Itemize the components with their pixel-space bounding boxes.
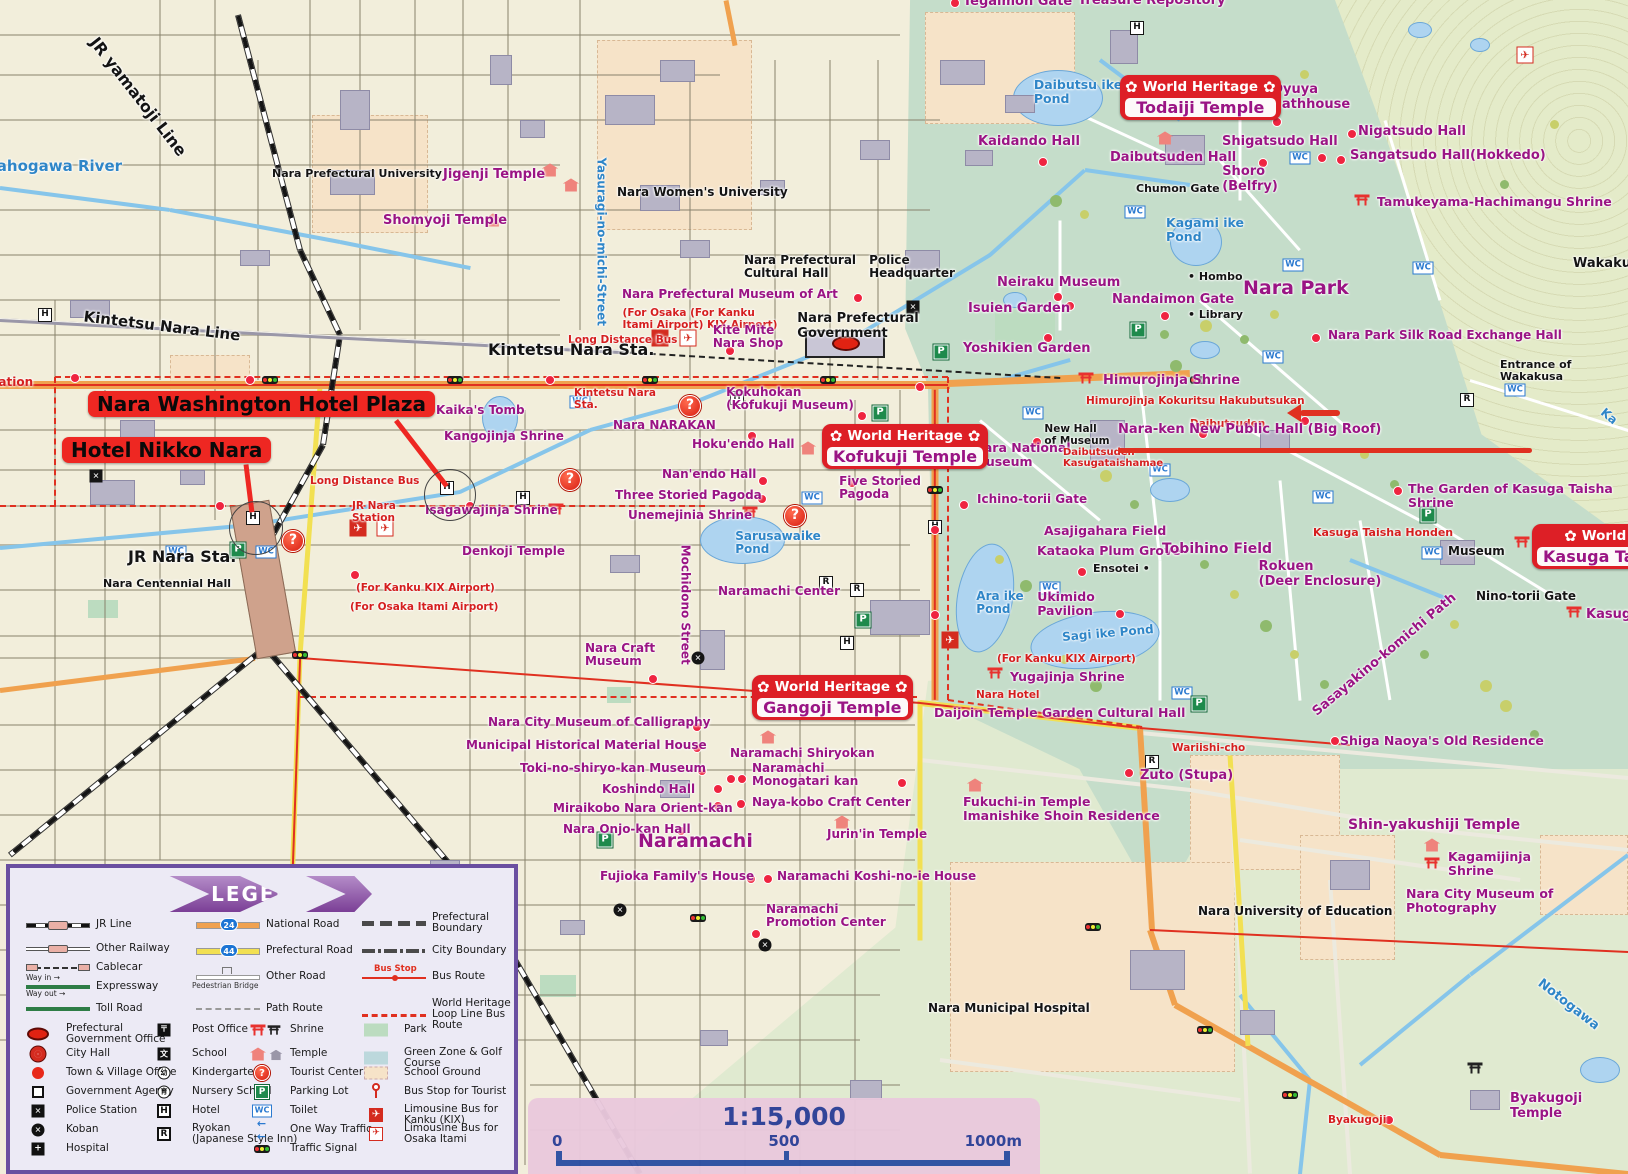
legend-item-label: Bus Stop for Tourist xyxy=(404,1086,506,1097)
poi-dot xyxy=(930,610,940,620)
map-label: Naramachi Shiryokan xyxy=(730,747,875,760)
world-heritage-box: ✿World Heritage✿Kasuga Taisha Shrine xyxy=(1532,524,1628,569)
street xyxy=(579,0,581,330)
map-label: Nara Prefectural University xyxy=(272,168,442,180)
map-label: Wakakusa xyxy=(1573,257,1628,272)
map-label: Sarusawaike Pond xyxy=(735,530,821,557)
tree xyxy=(1170,360,1182,372)
map-label: Daibutsu ike Pond xyxy=(1034,78,1122,106)
nara-tourist-map: WCWCWCWCWCWCWCWCWCWCWCWCWCWCWCWCPPPPPPPP… xyxy=(0,0,1628,1174)
poi-dot xyxy=(763,874,773,884)
poi-dot xyxy=(1317,153,1327,163)
world-heritage-label: World Heritage xyxy=(1143,79,1258,95)
map-label: Kaidando Hall xyxy=(978,135,1080,150)
legend-item-label: Temple xyxy=(290,1048,327,1059)
parking-icon: P xyxy=(1131,323,1146,338)
map-label: Hoku'endo Hall xyxy=(692,438,795,451)
bus-stop-head xyxy=(372,1083,380,1091)
oneway-icon: ← ← xyxy=(251,1117,273,1143)
map-label: Unemejinia Shrine xyxy=(628,509,752,522)
building xyxy=(680,240,710,258)
legend-symbol: 文 xyxy=(150,1047,186,1061)
map-label: Police Headquarter xyxy=(869,254,955,281)
legend-symbol: 育 xyxy=(150,1085,186,1099)
red-arrow-icon xyxy=(1300,410,1340,416)
map-label: Museum xyxy=(1448,545,1505,558)
map-label: Nara Prefectural Museum of Art xyxy=(622,288,838,301)
building xyxy=(850,1080,882,1100)
map-label: Ukimido Pavilion xyxy=(1037,590,1095,618)
sakura-flower-icon: ✿ xyxy=(968,427,981,445)
building xyxy=(605,95,655,125)
traffic-signal-icon xyxy=(690,914,706,922)
legend-item-label: Cablecar xyxy=(96,962,142,973)
sakura-flower-icon: ✿ xyxy=(830,427,843,445)
legend-symbol xyxy=(362,944,426,958)
map-label: Kagamijinja Shrine xyxy=(1448,850,1531,878)
toilet-icon: WC xyxy=(1422,547,1443,560)
world-heritage-site-name: Kasuga Taisha Shrine xyxy=(1537,547,1628,566)
street xyxy=(0,814,915,816)
toilet-icon: WC xyxy=(802,492,823,505)
poi-dot xyxy=(350,570,360,580)
building xyxy=(560,920,585,935)
legend-item-label: Post Office xyxy=(192,1024,248,1035)
map-label: Yugajinja Shrine xyxy=(1010,670,1125,684)
legend-item-label: Limousine Bus for Osaka Itami xyxy=(404,1123,514,1145)
map-label: Shomyoji Temple xyxy=(383,214,507,229)
toilet-icon: WC xyxy=(1023,407,1044,420)
legend-way-in: Way in → xyxy=(26,973,60,982)
poi-dot xyxy=(857,411,867,421)
tree xyxy=(1100,470,1112,482)
poi-dot xyxy=(930,525,940,535)
scale-line xyxy=(556,1160,1010,1166)
map-label: Kasuga xyxy=(1586,608,1628,623)
torii-shrine-icon xyxy=(268,1025,279,1034)
legend-item-label: Police Station xyxy=(66,1105,137,1116)
map-label: The Garden of Kasuga Taisha Shrine xyxy=(1408,482,1628,510)
tree xyxy=(1480,680,1492,692)
red-arrow-head xyxy=(1287,404,1301,422)
poi-dot xyxy=(70,373,80,383)
greenzone-icon xyxy=(364,1052,388,1065)
building xyxy=(340,90,370,130)
traffic-signal-icon xyxy=(1282,1091,1298,1099)
legend-route-badge: 44 xyxy=(220,944,238,957)
sakura-flower-icon: ✿ xyxy=(895,678,908,696)
building xyxy=(610,555,640,573)
poi-dot xyxy=(959,500,969,510)
map-label: Chumon Gate xyxy=(1136,183,1220,195)
map-label: Tegaimon Gate xyxy=(963,0,1072,10)
legend-symbol: 24 xyxy=(196,918,260,932)
map-label: Toki-no-shiryo-kan Museum xyxy=(520,762,706,775)
building xyxy=(1240,1010,1275,1035)
map-label: JR Nara Sta. xyxy=(128,548,236,566)
street xyxy=(309,0,311,380)
poi-dot xyxy=(1393,486,1403,496)
park-patch xyxy=(88,600,118,618)
hotel-icon: H xyxy=(157,1104,171,1118)
map-label: Sahogawa River xyxy=(0,158,122,175)
red-underline xyxy=(1118,448,1532,453)
toilet-icon: WC xyxy=(1505,384,1526,397)
sakura-flower-icon: ✿ xyxy=(1125,78,1138,96)
legend-line-sample xyxy=(48,945,68,953)
legend-item-signal: Traffic Signal xyxy=(248,1142,357,1156)
legend-symbol: 44 xyxy=(196,944,260,958)
building xyxy=(965,150,993,166)
map-label: Isuien Garden xyxy=(968,302,1070,317)
poi-dot xyxy=(1347,129,1357,139)
legend-symbol: ✕ xyxy=(24,1123,60,1137)
legend-item-prefb: Prefectural Boundary xyxy=(362,912,489,934)
building xyxy=(700,630,725,670)
traffic-signal-icon xyxy=(820,376,836,384)
traffic-signal-icon xyxy=(262,376,278,384)
legend-item-label: School Ground xyxy=(404,1067,481,1078)
map-label: Nara Centennial Hall xyxy=(103,578,231,590)
legend-symbol: + xyxy=(24,1142,60,1156)
koban-icon: ✕ xyxy=(692,652,705,665)
legend-symbol: 〒 xyxy=(150,1023,186,1037)
legend-item-label: City Boundary xyxy=(432,945,506,956)
traffic-signal-icon xyxy=(1085,923,1101,931)
legend-symbol: R xyxy=(150,1127,186,1141)
wh-loop-route xyxy=(54,377,56,506)
legend-symbol xyxy=(362,1008,426,1022)
map-label: Denkoji Temple xyxy=(462,545,565,558)
pond xyxy=(1470,38,1490,52)
world-heritage-title: ✿World Heritage✿ xyxy=(757,678,908,696)
legend-item-kinder: 幼Kindergarten xyxy=(150,1066,260,1080)
pond xyxy=(1580,1057,1620,1083)
highlight-circle xyxy=(424,469,476,521)
legend-item-label: One Way Traffic xyxy=(290,1124,372,1135)
scale-tick-0: 0 xyxy=(552,1132,562,1150)
police-station-icon: ✕ xyxy=(90,470,103,483)
legend-line-sample xyxy=(196,1008,260,1010)
poi-dot xyxy=(758,476,768,486)
map-label: Nara City Museum of Calligraphy xyxy=(488,716,710,729)
poi-dot xyxy=(726,774,736,784)
building xyxy=(1110,30,1138,64)
traffic-signal-icon xyxy=(292,651,308,659)
legend-item-label: City Hall xyxy=(66,1048,110,1059)
legend-symbol xyxy=(196,1002,260,1016)
legend-symbol xyxy=(24,1085,60,1099)
tree xyxy=(1320,680,1329,689)
pond xyxy=(1190,341,1220,359)
legend-title-text: LEGEND xyxy=(211,882,313,906)
legend-symbol xyxy=(24,1047,60,1061)
legend-symbol xyxy=(248,1047,284,1061)
legend-item-label: Tourist Center xyxy=(290,1067,363,1078)
map-label: Fukuchi-in Temple Imanishike Shoin Resid… xyxy=(963,795,1160,823)
street xyxy=(414,0,416,380)
parking-icon: P xyxy=(1192,697,1207,712)
world-heritage-title: ✿World Heritage✿ xyxy=(827,427,983,445)
building xyxy=(1005,95,1035,113)
hotel-icon: H xyxy=(840,636,854,650)
legend-line-sample xyxy=(26,1007,90,1011)
map-label: Nara Municipal Hospital xyxy=(928,1002,1090,1015)
legend-symbol: 幼 xyxy=(150,1066,186,1080)
legend-symbol xyxy=(26,1002,90,1016)
wh-loop-route xyxy=(55,376,948,378)
building xyxy=(180,470,205,485)
map-label: • Hombo xyxy=(1188,271,1243,283)
world-heritage-site-name: Todaiji Temple xyxy=(1125,98,1276,117)
parking-icon: P xyxy=(856,613,871,628)
highlight-circle xyxy=(229,501,283,555)
legend-item-cityb: City Boundary xyxy=(362,944,506,958)
map-label: Kokuhokan (Kofukuji Museum) xyxy=(726,386,854,413)
map-label: Kintetsu Nara Sta. xyxy=(574,388,656,412)
map-label: JR Nara Station xyxy=(352,501,396,525)
map-label: Ensotei • xyxy=(1093,563,1150,575)
world-heritage-label: World Heritage xyxy=(847,428,962,444)
legend-symbol xyxy=(248,1023,284,1037)
map-label: Nara Women's University xyxy=(617,186,788,199)
map-label: Nara University of Education xyxy=(1198,905,1392,918)
world-heritage-title: ✿World Heritage✿ xyxy=(1125,78,1276,96)
map-label: Kangojinja Shrine xyxy=(444,430,564,443)
map-label: Miraikobo Nara Orient-kan xyxy=(553,802,733,815)
map-label: Nara City Museum of Photography xyxy=(1406,887,1628,915)
toilet-icon: WC xyxy=(1413,262,1434,275)
map-label: Naramachi Promotion Center xyxy=(766,903,886,930)
legend-item-label: Toll Road xyxy=(96,1003,143,1014)
map-label: • Library xyxy=(1188,309,1243,321)
limo_itami-icon: ✈ xyxy=(369,1127,383,1141)
poi-dot xyxy=(648,674,658,684)
map-label: Daijoin Temple Garden Cultural Hall xyxy=(934,706,1185,720)
traffic-signal-icon xyxy=(927,486,943,494)
park-icon xyxy=(364,1024,388,1037)
map-label: Nara Prefectural Cultural Hall xyxy=(744,254,856,281)
map-label: Naramachi Center xyxy=(718,585,840,598)
post-icon: 〒 xyxy=(158,1024,171,1037)
tree xyxy=(1240,335,1249,344)
scale-bar: 1:15,000 0 500 1000m xyxy=(528,1098,1040,1174)
building xyxy=(660,60,695,82)
legend-symbol: ← ← xyxy=(248,1123,284,1137)
map-label: Long Distance Bus xyxy=(310,476,419,488)
legend-item-parking: PParking Lot xyxy=(248,1085,348,1099)
legend-item-limo-itami: ✈Limousine Bus for Osaka Itami xyxy=(362,1123,514,1145)
poi-dot xyxy=(1311,333,1321,343)
school-ground xyxy=(950,862,1235,1072)
legend-line-sample xyxy=(26,964,38,971)
world-heritage-site-name: Kofukuji Temple xyxy=(827,447,983,466)
street xyxy=(0,209,930,211)
poi-dot xyxy=(1115,609,1125,619)
poi-dot xyxy=(1077,567,1087,577)
building xyxy=(1330,860,1370,890)
poi-dot xyxy=(751,929,761,939)
legend-item-label: JR Line xyxy=(96,919,132,930)
scale-tick-1000: 1000m xyxy=(965,1132,1022,1150)
legend-item-path: Path Route xyxy=(196,1002,323,1016)
legend-item-hospital: +Hospital xyxy=(24,1142,109,1156)
world-heritage-box: ✿World Heritage✿Todaiji Temple xyxy=(1120,75,1281,120)
poi-dot xyxy=(1038,157,1048,167)
map-label: Oyuya Bathhouse xyxy=(1272,83,1350,112)
building xyxy=(1130,950,1185,990)
map-label: Nandaimon Gate xyxy=(1112,293,1234,308)
map-label: Nara Park Silk Road Exchange Hall xyxy=(1328,329,1562,342)
parking-icon: P xyxy=(934,345,949,360)
map-label: Byakugoji Temple xyxy=(1510,1092,1628,1121)
toilet-icon: WC xyxy=(1283,259,1304,272)
legend-symbol xyxy=(362,1023,398,1037)
legend-item-label: Bus Route xyxy=(432,971,485,982)
poi-dot xyxy=(915,382,925,392)
map-label: Mochidono Street xyxy=(678,545,691,665)
poi-dot xyxy=(1124,768,1134,778)
poi-dot xyxy=(736,799,746,809)
legend-item-toilet: WCToilet xyxy=(248,1104,317,1118)
tree xyxy=(1500,180,1509,189)
map-label: (For Kanku KIX Airport) xyxy=(997,654,1136,666)
pond xyxy=(1408,22,1432,38)
legend-item-national: 24National Road xyxy=(196,918,339,932)
scale-ratio: 1:15,000 xyxy=(722,1102,846,1131)
temple-icon xyxy=(250,1048,266,1061)
toilet-icon: WC xyxy=(1172,687,1193,700)
map-label: Shoro (Belfry) xyxy=(1222,165,1278,194)
poi-dot xyxy=(545,375,555,385)
map-label: Daibutsuden Hall xyxy=(1110,151,1236,166)
sakura-flower-icon: ✿ xyxy=(1564,527,1577,545)
limousine-bus-icon: ✈ xyxy=(680,330,697,347)
parking-icon: P xyxy=(255,1085,269,1099)
nursery-icon: 育 xyxy=(158,1086,171,1099)
legend-line-sample xyxy=(362,921,426,926)
legend-panel: LEGEND JR LineOther RailwayCablecarWay i… xyxy=(6,864,518,1174)
torii-shrine-icon xyxy=(1469,1063,1482,1074)
map-label: Ichino-torii Gate xyxy=(977,493,1087,506)
legend-line-sample xyxy=(48,921,68,930)
legend-item-park: Park xyxy=(362,1023,427,1037)
torii-shrine-icon xyxy=(1356,195,1369,206)
map-label: Naya-kobo Craft Center xyxy=(752,796,911,809)
building xyxy=(860,140,890,160)
world-heritage-box: ✿World Heritage✿Kofukuji Temple xyxy=(822,424,988,469)
town-icon xyxy=(32,1067,44,1079)
legend-symbol xyxy=(362,1051,398,1065)
map-label: Nara NARAKAN xyxy=(613,419,716,432)
legend-line-sample xyxy=(362,1014,426,1017)
tourist-center-icon: ? xyxy=(784,505,806,527)
legend-item-label: Hospital xyxy=(66,1143,109,1154)
tourist-icon: ? xyxy=(254,1065,270,1081)
legend-item-other: Pedestrian BridgeOther Road xyxy=(196,970,326,984)
world-heritage-title: ✿World Heritage✿ xyxy=(1537,527,1628,545)
map-label: Entrance of Wakakusa xyxy=(1500,359,1628,384)
map-label: Zuto (Stupa) xyxy=(1140,769,1233,784)
legend-symbol: H xyxy=(150,1104,186,1118)
poi-dot xyxy=(215,501,225,511)
map-label: Rokuen (Deer Enclosure) xyxy=(1259,560,1382,589)
map-label: Fujioka Family's House xyxy=(600,870,754,883)
street xyxy=(0,635,920,637)
legend-symbol: ✈ xyxy=(362,1108,398,1122)
tree xyxy=(1200,560,1209,569)
tree xyxy=(1050,195,1062,207)
map-label: Nara Prefectural Government xyxy=(797,312,918,341)
building xyxy=(240,250,270,266)
map-label: Naramachi Monogatari kan xyxy=(752,762,858,789)
map-label: Sangatsudo Hall(Hokkedo) xyxy=(1350,149,1546,164)
tourist-center-icon: ? xyxy=(559,469,581,491)
tree xyxy=(1550,120,1559,129)
map-label: Nan'endo Hall xyxy=(662,468,756,481)
map-label: Kite Mite Nara Shop xyxy=(713,324,783,351)
school-icon: 文 xyxy=(158,1048,171,1061)
tree xyxy=(1270,310,1279,319)
poi-dot xyxy=(897,778,907,788)
map-label: Shin-yakushiji Temple xyxy=(1348,818,1520,834)
legend-item-schoolground: School Ground xyxy=(362,1066,481,1080)
tree xyxy=(1500,700,1512,712)
world-heritage-label: World Heritage xyxy=(775,679,890,695)
legend-symbol: ✈ xyxy=(362,1127,398,1141)
parking-icon: P xyxy=(873,406,888,421)
tree xyxy=(1420,650,1429,659)
legend-item-temple: Temple xyxy=(248,1047,327,1061)
legend-item-label: Path Route xyxy=(266,1003,323,1014)
ryokan-icon: R xyxy=(1460,393,1474,407)
building xyxy=(90,480,135,505)
street xyxy=(0,469,935,471)
map-label: (For Osaka Itami Airport) xyxy=(350,602,498,614)
map-label: Shigatsudo Hall xyxy=(1222,135,1338,150)
legend-bus-stop-dot xyxy=(392,975,398,981)
pedestrian-bridge-icon xyxy=(222,967,232,974)
legend-item-label: Toilet xyxy=(290,1105,317,1116)
sakura-flower-icon: ✿ xyxy=(1263,78,1276,96)
map-label: Station xyxy=(0,376,33,389)
tree xyxy=(995,555,1004,564)
legend-symbol: WC xyxy=(248,1104,284,1118)
toilet-icon: WC xyxy=(1125,206,1146,219)
police-icon: ✕ xyxy=(32,1105,45,1118)
map-label: Five Storied Pagoda xyxy=(839,475,921,502)
traffic-signal-icon xyxy=(254,1145,270,1153)
legend-symbol xyxy=(362,1085,398,1099)
legend-symbol: Way in →Way out → xyxy=(26,980,90,994)
legend-item-label: World Heritage Loop Line Bus Route xyxy=(432,998,514,1031)
legend-item-busstop: Bus Stop for Tourist xyxy=(362,1085,506,1099)
legend-item-label: Prefectural Road xyxy=(266,945,353,956)
poi-dot xyxy=(713,784,723,794)
tree xyxy=(1200,320,1212,332)
tree xyxy=(1290,650,1299,659)
poi-dot xyxy=(853,293,863,303)
legend-item-label: School xyxy=(192,1048,227,1059)
koban-icon: ✕ xyxy=(32,1124,45,1137)
street xyxy=(0,34,900,36)
limo_kix-icon: ✈ xyxy=(369,1108,383,1122)
legend-item-oneway: ← ←One Way Traffic xyxy=(248,1123,372,1137)
building xyxy=(940,60,985,85)
koban-icon: ✕ xyxy=(614,904,627,917)
legend-item-label: Prefectural Boundary xyxy=(432,912,489,934)
map-label: Kasuga Taisha Honden xyxy=(1313,527,1453,539)
